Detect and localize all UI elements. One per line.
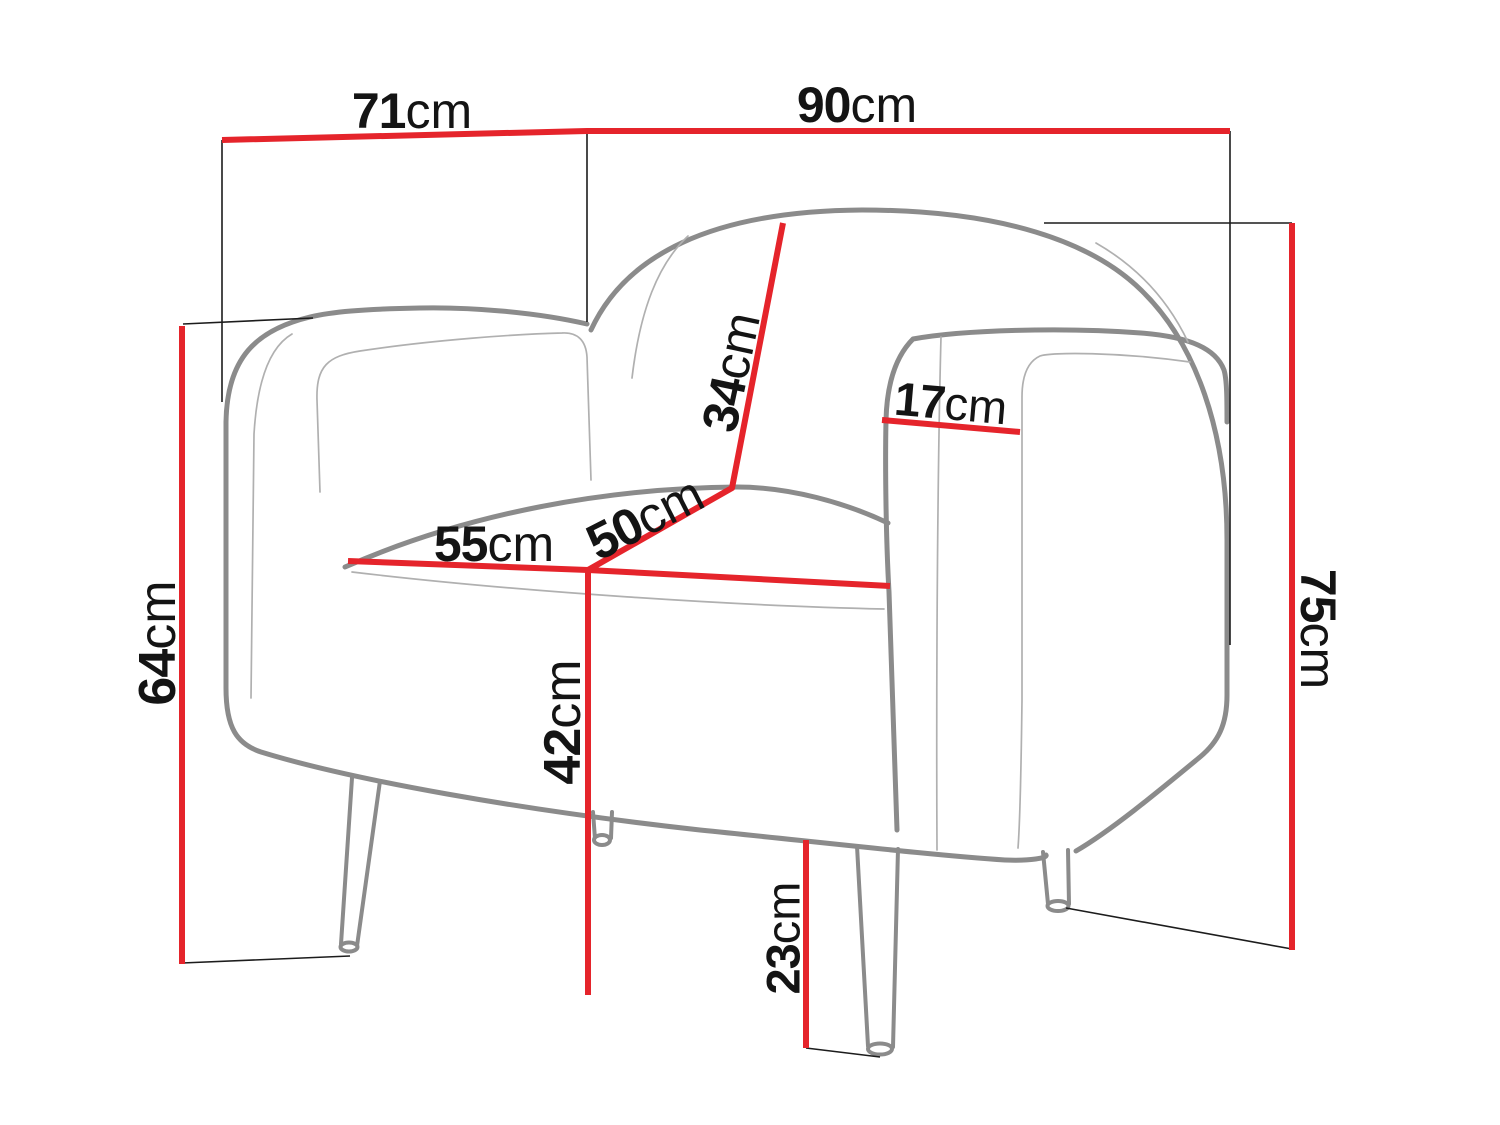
left-armrest-inner-panel <box>317 333 591 492</box>
guide-lines-group <box>182 131 1292 1057</box>
guide-side-height-bottom <box>182 956 350 963</box>
dimension-unit: cm <box>850 77 917 133</box>
back-right-leg-foot <box>1048 901 1069 911</box>
dimension-label-overall-height: 75cm <box>1293 569 1343 689</box>
seat-front-crease <box>352 572 884 609</box>
dimension-unit: cm <box>405 83 472 139</box>
chair-outline-group <box>226 210 1227 860</box>
dimension-label-top-width: 90cm <box>797 80 917 130</box>
dimension-label-seat-height: 42cm <box>537 659 589 784</box>
dimension-unit: cm <box>487 516 554 572</box>
dimension-unit: cm <box>943 376 1010 434</box>
dimension-value: 23 <box>757 944 810 994</box>
dimension-value: 64 <box>129 650 187 706</box>
dimension-label-side-height: 64cm <box>132 580 184 705</box>
front-left-leg-foot <box>341 943 358 952</box>
backrest-crease <box>632 236 688 378</box>
left-armrest-crease <box>251 334 292 698</box>
dimension-unit: cm <box>534 659 592 728</box>
dimension-unit: cm <box>757 882 810 945</box>
front-center-leg-foot <box>594 835 610 845</box>
chair-legs-group <box>341 778 1070 1055</box>
dimension-unit: cm <box>1290 622 1346 689</box>
dimension-diagram: 71cm 90cm 34cm 17cm 50cm 55cm 64cm 42cm … <box>0 0 1500 1125</box>
dimension-label-armrest-width: 17cm <box>893 375 1010 432</box>
armchair-drawing <box>0 0 1500 1125</box>
dimension-label-top-depth: 71cm <box>352 86 472 136</box>
dimension-label-leg-height: 23cm <box>760 882 807 995</box>
dimension-value: 90 <box>797 77 851 133</box>
dimension-value: 71 <box>352 83 406 139</box>
dimension-value: 75 <box>1290 569 1346 623</box>
dimension-lines-group <box>182 131 1292 1048</box>
backrest-outline <box>591 210 1227 851</box>
dimension-value: 55 <box>434 516 488 572</box>
front-left-leg <box>341 778 380 946</box>
front-right-leg-foot <box>868 1044 892 1055</box>
dimension-label-seat-width: 55cm <box>434 519 554 569</box>
guide-overall-height-bottom <box>1066 908 1292 949</box>
right-armrest-inner-panel <box>1018 354 1190 848</box>
dimension-value: 42 <box>534 729 592 785</box>
front-right-leg <box>857 846 898 1047</box>
dimension-value: 17 <box>892 372 947 429</box>
dim-line-seat-width <box>348 561 890 586</box>
dimension-unit: cm <box>129 580 187 649</box>
